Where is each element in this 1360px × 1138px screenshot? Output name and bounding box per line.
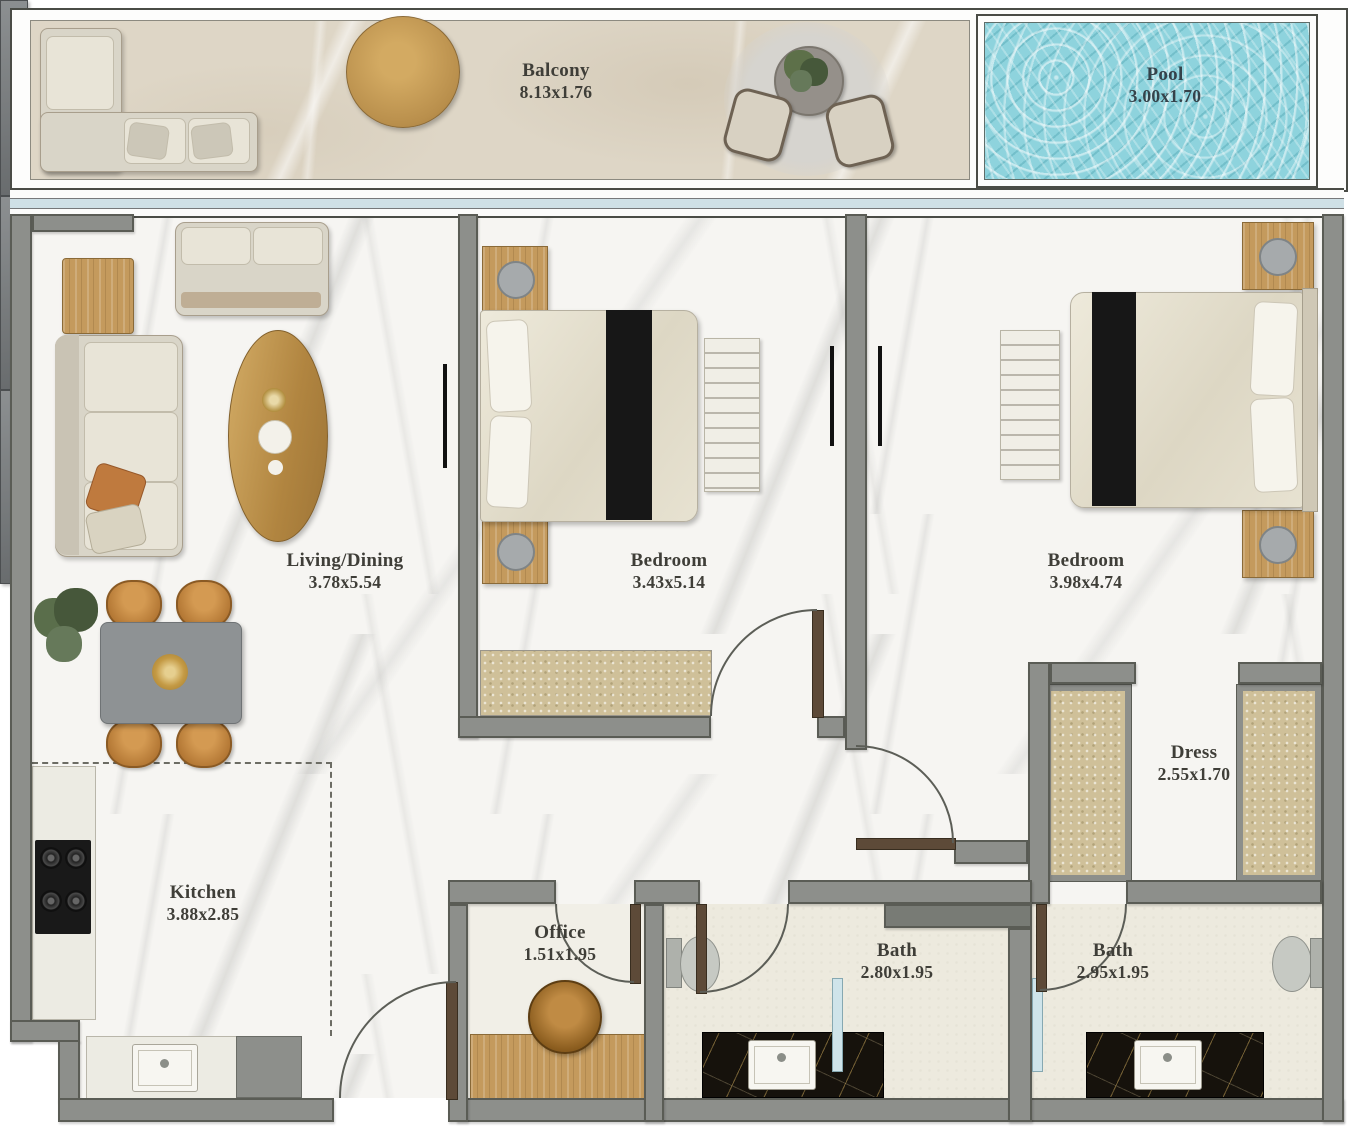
bed-headboard	[1302, 288, 1318, 512]
living-dining-name: Living/Dining	[287, 550, 404, 572]
door-leaf-bath2	[1036, 904, 1047, 992]
wall-bottom-b	[456, 1098, 1344, 1122]
armchair-back-cushion	[253, 227, 323, 265]
pool-dims: 3.00x1.70	[1129, 86, 1202, 107]
faucet-icon	[777, 1053, 786, 1062]
wardrobe-handle	[878, 346, 882, 446]
bath2-name: Bath	[1077, 940, 1150, 962]
vanity-sink	[1134, 1040, 1202, 1090]
wall-bedroom1-bottom-stub	[817, 716, 845, 738]
stove-burner	[65, 847, 87, 869]
wardrobe-handle	[443, 364, 447, 468]
wall-dress-top-a	[1050, 662, 1136, 684]
shower-glass	[832, 978, 843, 1072]
armchair-back-cushion	[181, 227, 251, 265]
wall-dress-top-b	[1238, 662, 1322, 684]
faucet-icon	[160, 1059, 169, 1068]
dress-wardrobe-front	[1243, 691, 1315, 875]
coffee-table-decor-dot	[268, 460, 283, 475]
balcony-name: Balcony	[520, 60, 593, 82]
patio-plant	[790, 70, 812, 92]
bed-pillow	[1250, 397, 1299, 493]
bed-runner	[1092, 292, 1136, 506]
wall-bedroom1-bottom	[458, 716, 711, 738]
dress-name: Dress	[1158, 742, 1231, 764]
room-label-bath1: Bath 2.80x1.95	[861, 940, 934, 983]
bed-pillow	[486, 319, 533, 413]
balcony-round-table	[346, 16, 460, 128]
lamp-icon	[1259, 238, 1297, 276]
stove-burner	[65, 890, 87, 912]
wall-bathrow-a	[448, 880, 556, 904]
dress-wardrobe	[1044, 684, 1132, 882]
sink-basin	[138, 1050, 192, 1086]
coffee-table-decor-bowl	[258, 420, 292, 454]
toilet	[1272, 936, 1312, 992]
room-label-living-dining: Living/Dining 3.78x5.54	[287, 550, 404, 593]
living-dining-dims: 3.78x5.54	[287, 572, 404, 593]
shower-glass	[1032, 978, 1043, 1072]
bedroom1-rug	[480, 650, 712, 716]
bed-pillow	[486, 415, 533, 509]
wall-step-v	[58, 1040, 80, 1102]
room-label-bedroom2: Bedroom 3.98x4.74	[1048, 550, 1125, 593]
pool-name: Pool	[1129, 64, 1202, 86]
wall-left	[10, 214, 32, 1042]
kitchen-boundary-dashed-h	[32, 762, 332, 764]
room-label-dress: Dress 2.55x1.70	[1158, 742, 1231, 785]
kitchen-boundary-dashed-v	[330, 762, 332, 1036]
room-label-balcony: Balcony 8.13x1.76	[520, 60, 593, 103]
bed-runner	[606, 310, 652, 520]
bedroom1-name: Bedroom	[631, 550, 708, 572]
office-name: Office	[524, 922, 597, 944]
kitchen-cabinet	[236, 1036, 302, 1098]
bath1-dims: 2.80x1.95	[861, 962, 934, 983]
wall-bath-block	[884, 904, 1032, 928]
door-leaf-bedroom2	[856, 838, 956, 850]
wall-bath-divider	[1008, 928, 1032, 1122]
faucet-icon	[1163, 1053, 1172, 1062]
kitchen-sink	[132, 1044, 198, 1092]
door-leaf-entrance	[446, 982, 458, 1100]
side-table	[62, 258, 134, 334]
office-chair	[528, 980, 602, 1054]
wall-step-h	[10, 1020, 80, 1042]
wall-right	[1322, 214, 1344, 1122]
wall-bottom-a	[58, 1098, 334, 1122]
lamp-icon	[1259, 526, 1297, 564]
exterior-mask	[10, 1042, 58, 1124]
wall-living-bedroom1	[458, 214, 478, 738]
stove-burner	[40, 847, 62, 869]
wall-bathrow-c	[788, 880, 1032, 904]
wall-bedroom-divider	[845, 214, 867, 750]
bedroom2-name: Bedroom	[1048, 550, 1125, 572]
dress-wardrobe-front	[1051, 691, 1125, 875]
sink-basin	[1140, 1046, 1196, 1084]
bed-pillow	[1250, 301, 1299, 397]
room-label-bedroom1: Bedroom 3.43x5.14	[631, 550, 708, 593]
plant	[46, 626, 82, 662]
wall-bedroom2-bottom	[954, 840, 1028, 864]
door-leaf-office	[630, 904, 641, 984]
armchair-trim	[181, 292, 321, 308]
coffee-table-decor-ring	[262, 388, 286, 412]
room-label-office: Office 1.51x1.95	[524, 922, 597, 965]
lamp-icon	[497, 261, 535, 299]
bedroom2-dims: 3.98x4.74	[1048, 572, 1125, 593]
wall-top-stub	[32, 214, 134, 232]
room-label-bath2: Bath 2.95x1.95	[1077, 940, 1150, 983]
wall-dress-left	[1028, 662, 1050, 904]
sink-basin	[754, 1046, 810, 1084]
wall-office-right	[644, 904, 664, 1122]
kitchen-name: Kitchen	[167, 882, 240, 904]
bed-bench	[1000, 330, 1060, 480]
window-band	[10, 188, 1344, 218]
balcony-dims: 8.13x1.76	[520, 82, 593, 103]
floor-plan: Balcony 8.13x1.76 Pool 3.00x1.70 Living/…	[0, 0, 1360, 1138]
dining-chair	[176, 718, 232, 768]
sofa-cushion	[84, 342, 178, 412]
bedroom1-dims: 3.43x5.14	[631, 572, 708, 593]
bath1-name: Bath	[861, 940, 934, 962]
vanity-sink	[748, 1040, 816, 1090]
dress-dims: 2.55x1.70	[1158, 764, 1231, 785]
stove-burner	[40, 890, 62, 912]
sofa-backrest	[55, 335, 79, 555]
balcony-sofa-cushion	[46, 36, 114, 110]
room-label-pool: Pool 3.00x1.70	[1129, 64, 1202, 107]
office-dims: 1.51x1.95	[524, 944, 597, 965]
balcony-sofa-pillow	[126, 121, 170, 160]
bed-bench	[704, 338, 760, 492]
room-label-kitchen: Kitchen 3.88x2.85	[167, 882, 240, 925]
wall-bathrow-b	[634, 880, 700, 904]
lamp-icon	[497, 533, 535, 571]
dining-table-centerpiece	[152, 654, 188, 690]
kitchen-dims: 3.88x2.85	[167, 904, 240, 925]
bath2-dims: 2.95x1.95	[1077, 962, 1150, 983]
balcony-sofa-pillow	[190, 122, 234, 161]
wall-bathrow-d	[1126, 880, 1322, 904]
wardrobe-handle	[830, 346, 834, 446]
door-leaf-bath1	[696, 904, 707, 994]
door-leaf-bedroom1	[812, 610, 824, 718]
dress-wardrobe	[1236, 684, 1322, 882]
window-glass-line	[10, 198, 1344, 209]
dining-chair	[106, 718, 162, 768]
